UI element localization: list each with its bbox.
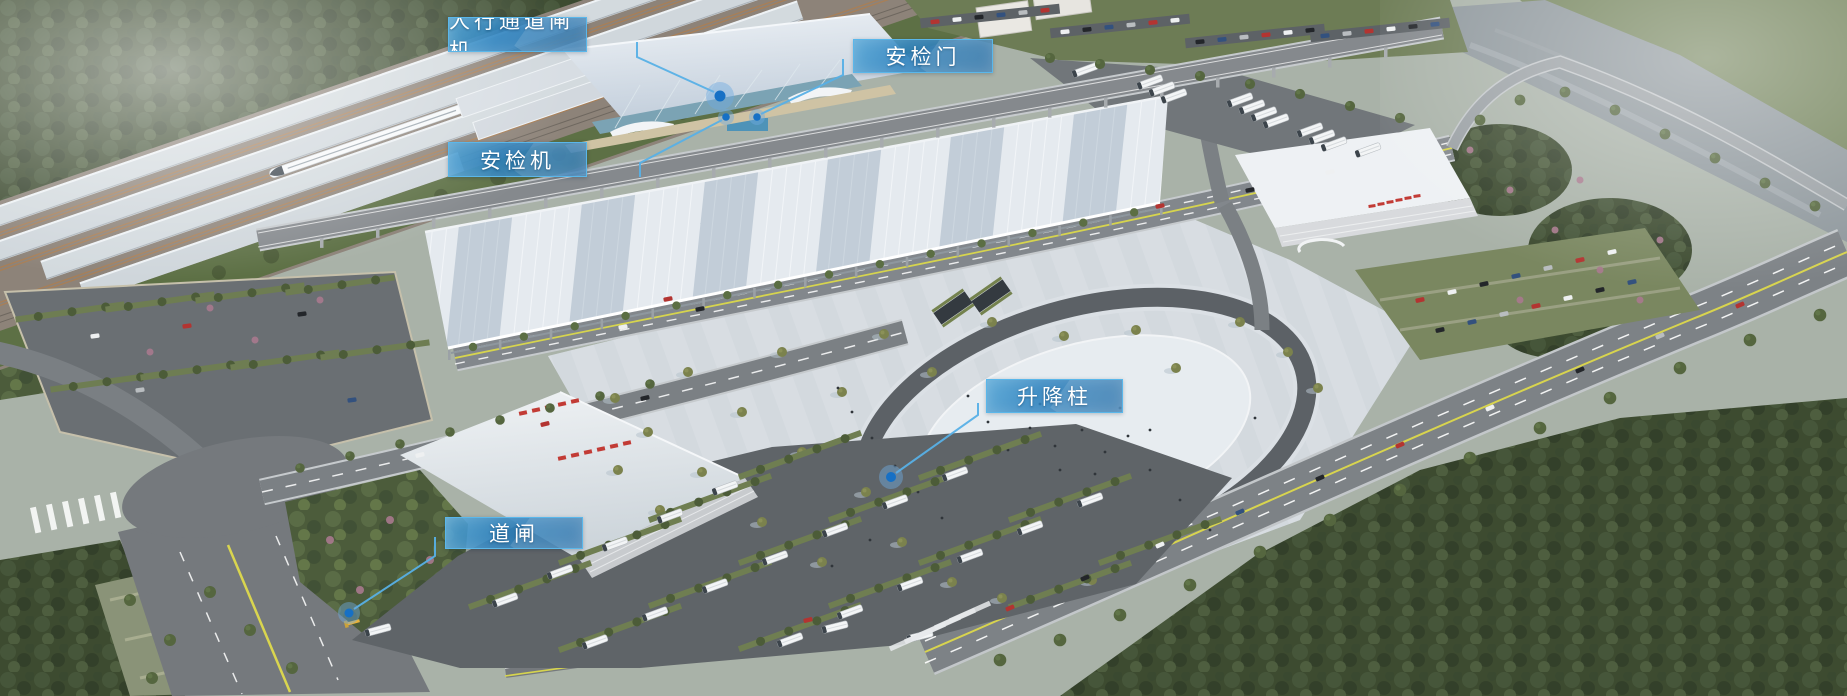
- aerial-render: [0, 0, 1847, 696]
- smart-station-aerial-banner: 人行通道闸机安检门安检机升降柱道闸: [0, 0, 1847, 696]
